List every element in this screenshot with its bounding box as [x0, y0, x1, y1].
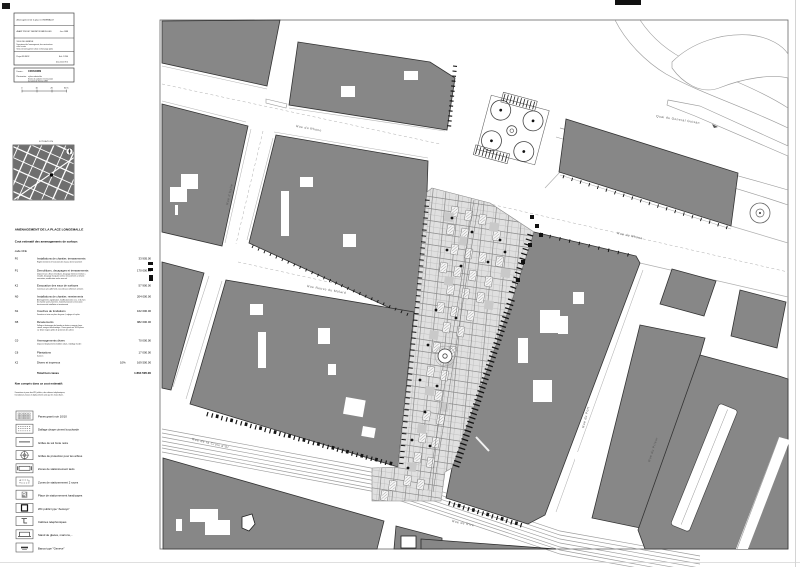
svg-text:Amenagements divers: Amenagements divers	[37, 339, 65, 343]
svg-text:VILLE DE GENEVE: VILLE DE GENEVE	[17, 41, 34, 43]
svg-text:F0: F0	[15, 257, 19, 261]
svg-text:N5: N5	[15, 320, 19, 324]
svg-text:CROSORIM: CROSORIM	[28, 70, 41, 73]
svg-text:Zones de stationnement 2 roues: Zones de stationnement 2 roues	[38, 480, 79, 484]
svg-text:Planimetrie :: Planimetrie :	[17, 75, 28, 78]
svg-text:169 500.00: 169 500.00	[137, 361, 151, 365]
svg-text:evacuation, modification socle: evacuation, modification socles sous-sol	[37, 277, 68, 280]
svg-text:Amenagement de la place LONGEM: Amenagement de la place LONGEMALLE	[17, 19, 55, 22]
svg-text:Regles forestieres it l'execut: Regles forestieres it l'execution des tr…	[37, 260, 83, 263]
svg-text:70 000.00: 70 000.00	[139, 339, 152, 343]
svg-text:AVANT PROJET DEFINITIF PARCELL: AVANT PROJET DEFINITIF PARCELLES	[17, 30, 53, 33]
svg-text:6 pieces: 6 pieces	[37, 355, 43, 357]
svg-text:AMENAGEMENT DE LA PLACE LONGEM: AMENAGEMENT DE LA PLACE LONGEMALLE	[15, 228, 83, 232]
svg-text:P1: P1	[15, 269, 19, 273]
svg-text:Stand de glaces, marrons,...: Stand de glaces, marrons,...	[38, 533, 73, 537]
svg-text:Fourniture et mise en place de: Fourniture et mise en place de grave I, …	[37, 313, 80, 316]
svg-text:Depose et deplacements mobilie: Depose et deplacements mobilier urbain -…	[37, 342, 81, 345]
svg-text:Cout estimatif des amenagement: Cout estimatif des amenagements de surfa…	[15, 240, 78, 244]
svg-text:982 000.00: 982 000.00	[137, 320, 151, 324]
svg-text:10%: 10%	[120, 361, 126, 365]
svg-text:Place de stationnement handica: Place de stationnement handicapes	[38, 494, 83, 498]
svg-text:10: 10	[36, 88, 39, 90]
svg-text:170 000.00: 170 000.00	[137, 269, 151, 273]
svg-text:Revetements: Revetements	[37, 320, 54, 324]
svg-text:Fourniture et pose des WC publ: Fourniture et pose des WC publics, des c…	[15, 391, 66, 394]
svg-text:Ech. 1/200: Ech. 1/200	[59, 56, 68, 58]
svg-text:Bancs type "Geneve": Bancs type "Geneve"	[38, 546, 64, 550]
svg-text:57 900.00: 57 900.00	[139, 284, 152, 288]
svg-text:Cabines telephoniques: Cabines telephoniques	[38, 520, 67, 524]
svg-text:Couches de fondations: Couches de fondations	[37, 309, 66, 313]
svg-text:Caniveaux avec grille fonte, r: Caniveaux avec grille fonte, raccords au…	[37, 287, 83, 290]
svg-text:C0: C0	[15, 339, 19, 343]
svg-text:horodateurs, bancs et deplacem: horodateurs, bancs et deplacement ainsi …	[15, 393, 64, 396]
svg-text:code CFE: code CFE	[15, 249, 27, 253]
svg-text:Paves granit noir 10/10: Paves granit noir 10/10	[38, 414, 67, 418]
svg-text:Projet SD 8492: Projet SD 8492	[17, 55, 30, 58]
svg-text:SITUATION: SITUATION	[39, 140, 53, 143]
svg-text:Installations de chantier, ter: Installations de chantier, terrassements	[37, 257, 86, 261]
svg-text:Evacuation des eaux de surface: Evacuation des eaux de surfaces	[37, 284, 79, 288]
svg-text:sur beton maigre; grilles de p: sur beton maigre; grilles de protection …	[37, 328, 74, 331]
svg-text:33 905.00: 33 905.00	[139, 257, 152, 261]
svg-text:Document N 2: Document N 2	[56, 60, 68, 63]
svg-text:N1: N1	[15, 309, 19, 313]
svg-text:Grilles de sol fonte noire: Grilles de sol fonte noire	[38, 441, 69, 445]
svg-text:N0: N0	[15, 295, 19, 299]
svg-text:Total hors taxes: Total hors taxes	[37, 371, 59, 375]
svg-text:20: 20	[51, 88, 54, 90]
svg-text:Juin 1988: Juin 1988	[60, 31, 68, 33]
svg-text:C6: C6	[15, 351, 19, 355]
svg-text:X2: X2	[15, 361, 19, 365]
svg-text:1 864 505.00: 1 864 505.00	[134, 371, 151, 375]
svg-text:Grilles de protection pour les: Grilles de protection pour les arbres	[38, 454, 83, 458]
svg-text:Demolitions, decapages et terr: Demolitions, decapages et terrassements	[37, 269, 89, 273]
svg-text:17 000.00: 17 000.00	[139, 351, 152, 355]
svg-text:Non compris dans ce cout estim: Non compris dans ce cout estimatif:	[15, 382, 63, 386]
svg-text:WC public type "Autosys": WC public type "Autosys"	[38, 507, 70, 511]
svg-text:Plantations: Plantations	[37, 351, 51, 355]
svg-text:0: 0	[21, 88, 23, 90]
svg-text:Divers et imprevus: Divers et imprevus	[37, 361, 61, 365]
svg-text:Zones de stationnement taxis: Zones de stationnement taxis	[38, 467, 75, 471]
svg-text:Dessin :: Dessin :	[17, 71, 24, 73]
svg-text:162 000.00: 162 000.00	[137, 309, 151, 313]
svg-text:204 000.00: 204 000.00	[137, 295, 151, 299]
svg-text:Dallage chape ciment boucharde: Dallage chape ciment boucharde	[38, 428, 79, 432]
svg-text:des travaux de installation et: des travaux de installation et revetemen…	[37, 303, 68, 306]
svg-text:Installations de chantier, rev: Installations de chantier, revetements	[37, 295, 84, 299]
svg-text:K2: K2	[15, 284, 19, 288]
svg-text:30 m: 30 m	[64, 88, 69, 90]
